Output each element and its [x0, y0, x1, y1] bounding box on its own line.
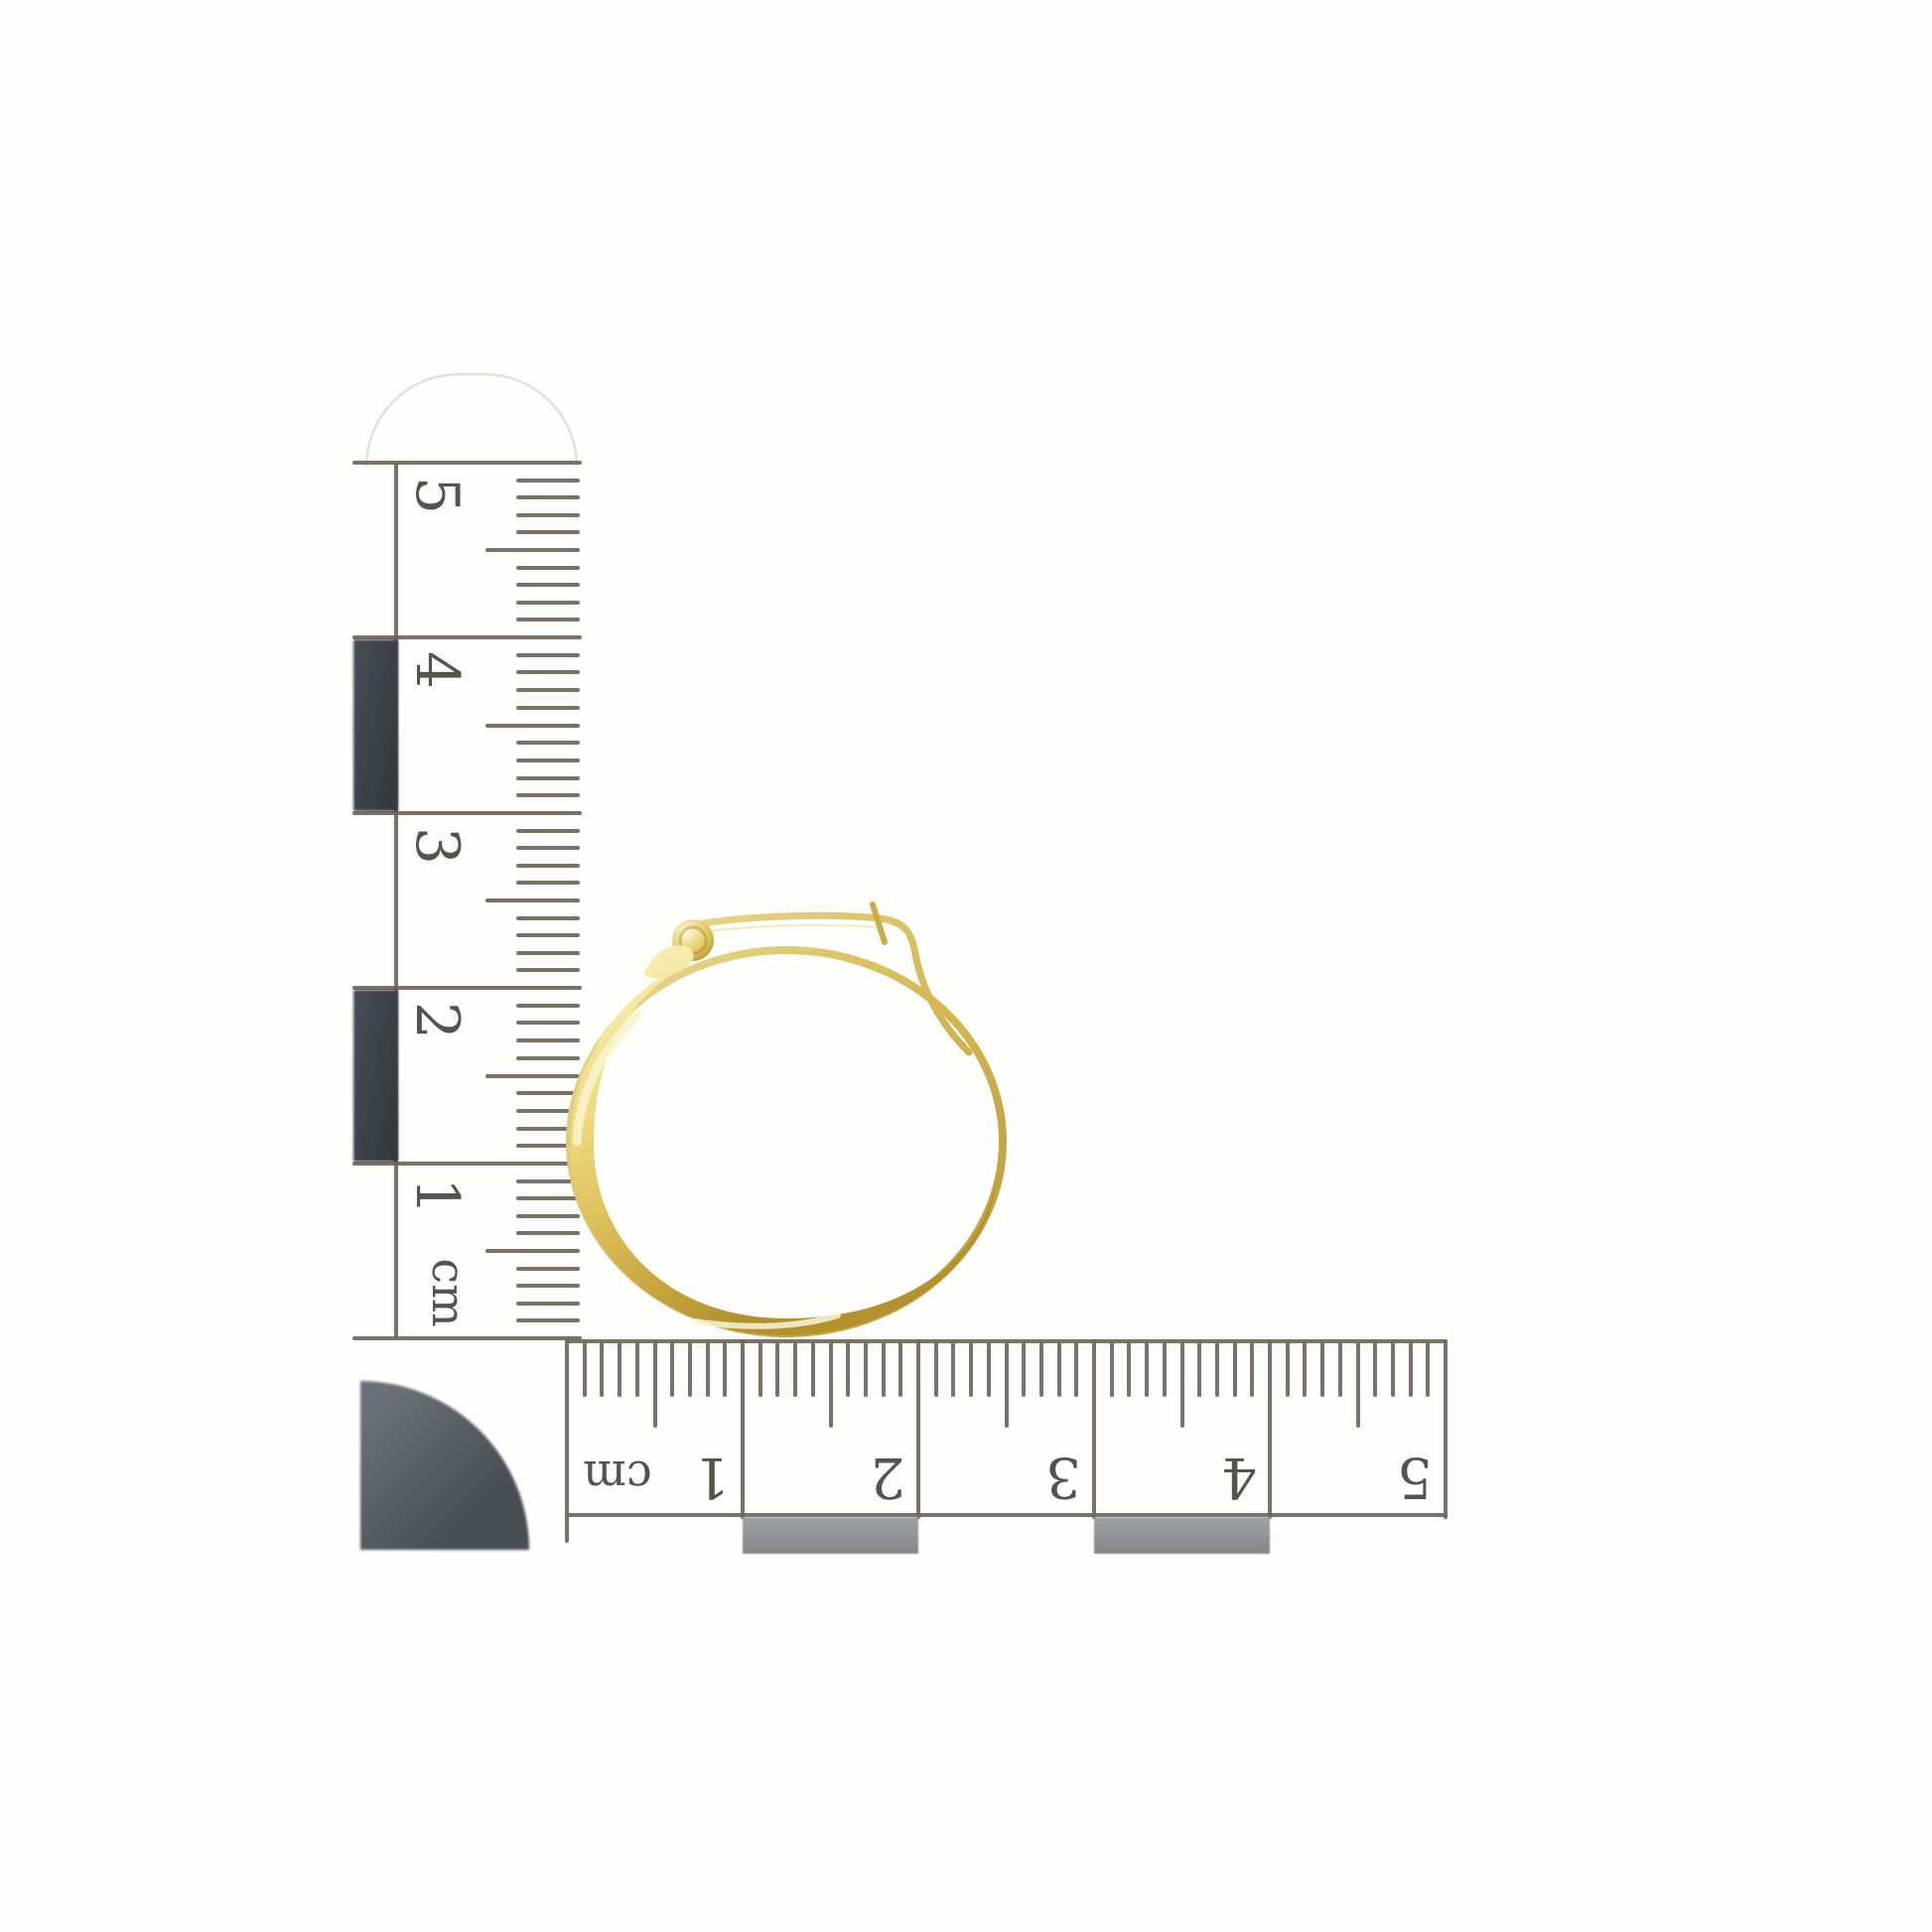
photo-canvas: 54321cm 12345cm	[0, 0, 1932, 1932]
latch-wire-highlight	[709, 925, 876, 931]
latch-pin	[873, 904, 885, 942]
hoop-band	[570, 971, 996, 1335]
gold-hoop-earring	[0, 0, 1932, 1932]
latch-wire	[703, 915, 969, 1052]
